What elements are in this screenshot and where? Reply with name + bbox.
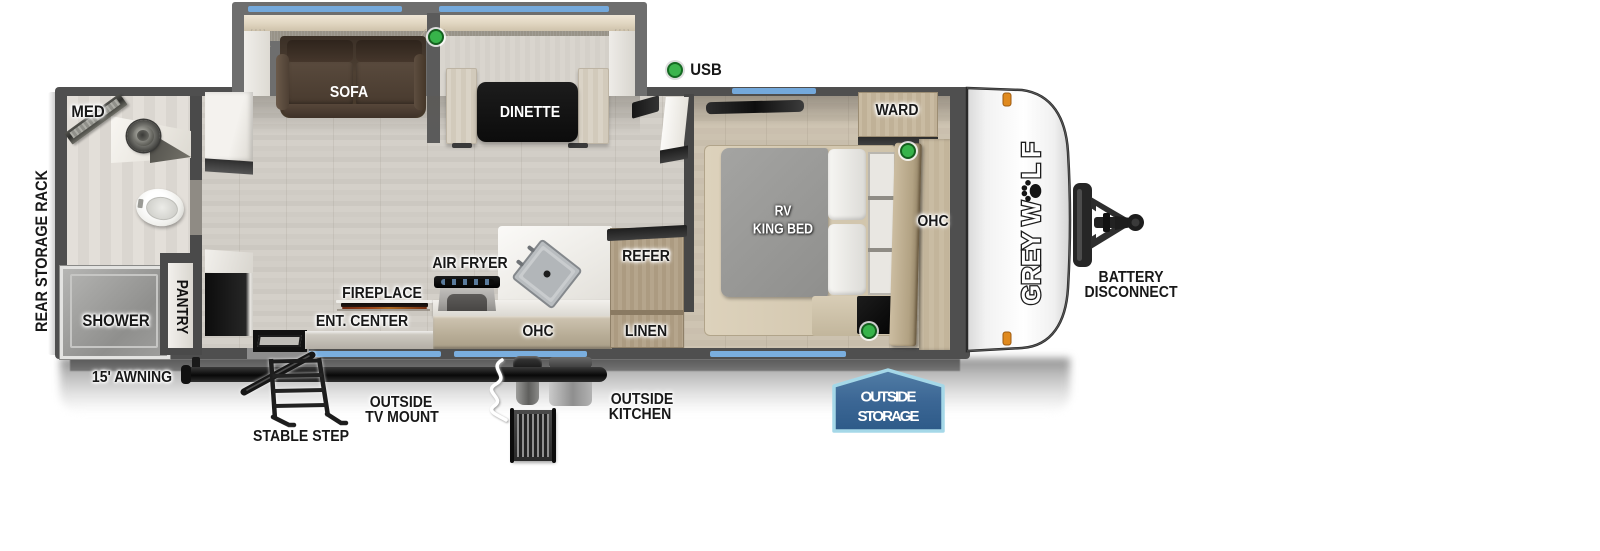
svg-text:GREY W: GREY W [1016,201,1046,305]
svg-text:STORAGE: STORAGE [858,408,920,425]
svg-text:OUTSIDE: OUTSIDE [861,389,917,406]
